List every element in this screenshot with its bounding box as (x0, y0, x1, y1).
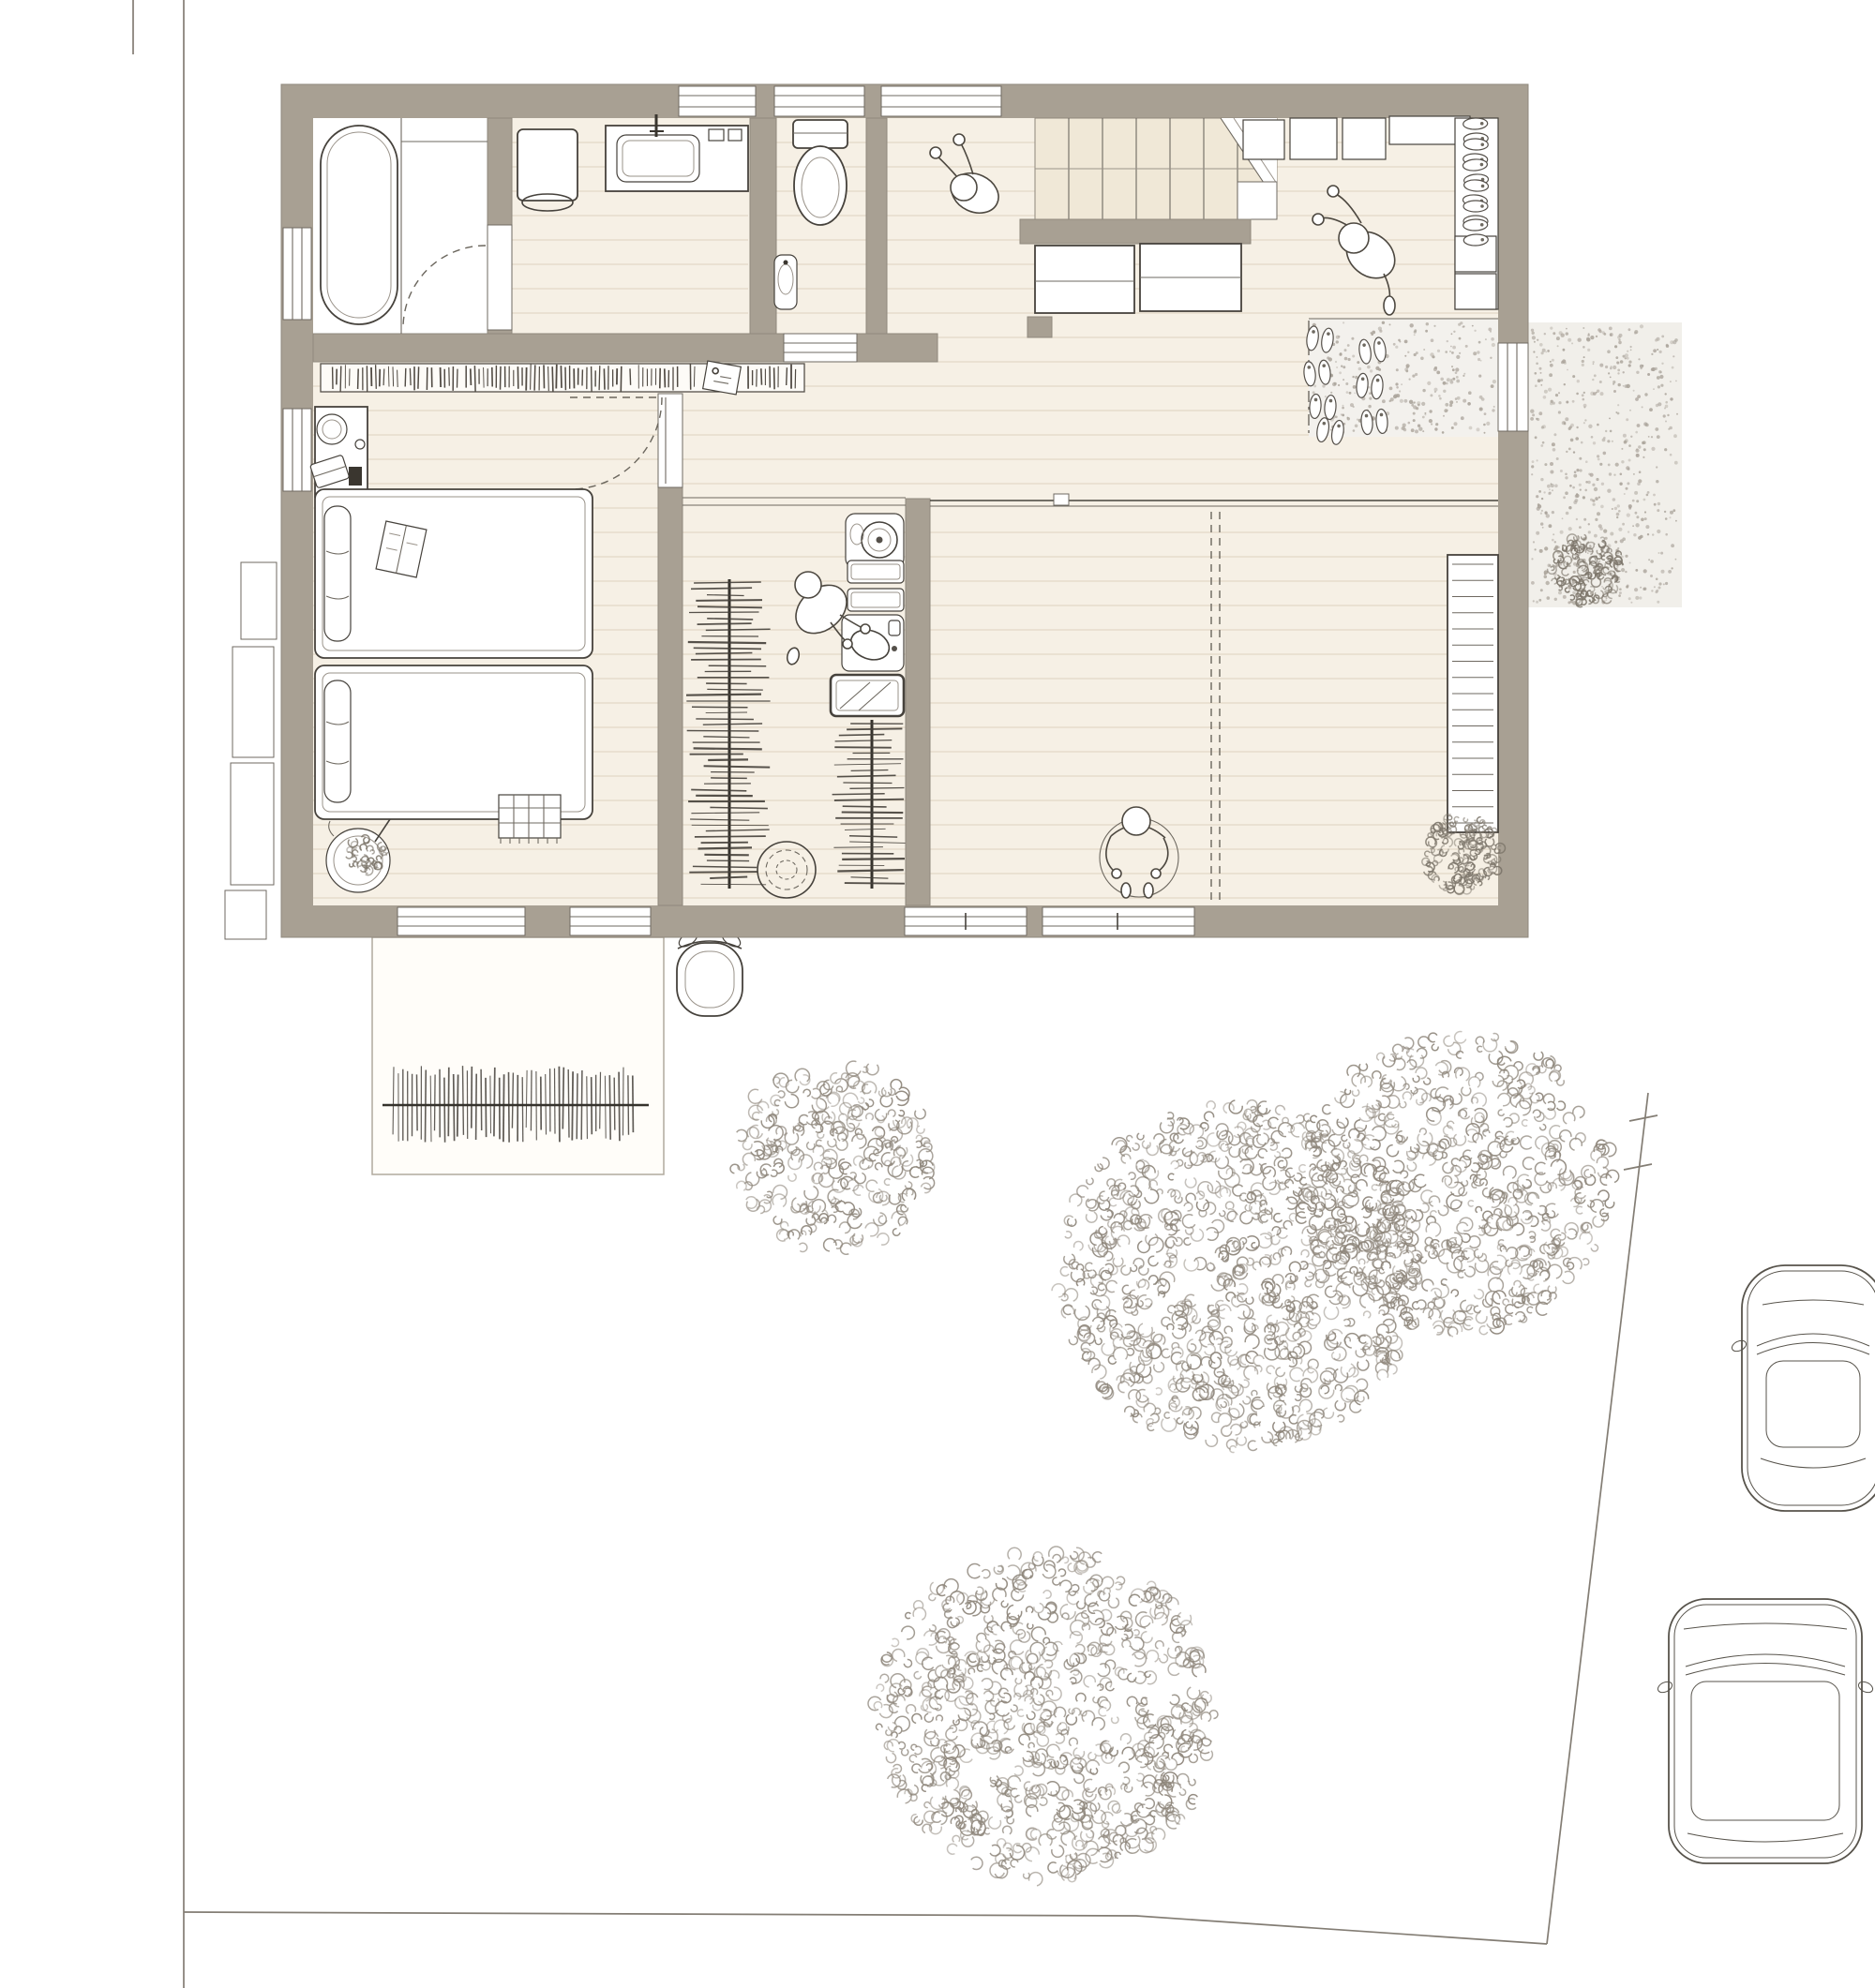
living-sliding-doors (1042, 907, 1194, 935)
understair-wall (1020, 219, 1251, 244)
garden-stool (677, 929, 743, 1016)
laundry-basket (831, 675, 904, 716)
boundary-tick (1624, 1164, 1652, 1170)
house (225, 84, 1678, 939)
boundary-tick (1629, 1115, 1657, 1121)
page (0, 0, 1875, 1988)
post (1027, 317, 1052, 337)
exterior-louvers (225, 562, 277, 939)
entrance-door (1498, 343, 1528, 431)
toilet-tank (793, 120, 847, 148)
pillow (324, 680, 351, 802)
floor-plan-drawing (0, 0, 1875, 1988)
boundary-right-diagonal (1547, 1093, 1648, 1944)
car (1731, 1265, 1875, 1511)
bookshelf (321, 361, 804, 395)
garden-trees (730, 1032, 1619, 1887)
blanket (499, 795, 561, 844)
washing-machine (517, 129, 577, 201)
toilet-sliding-door (784, 334, 857, 362)
fan-unit (846, 514, 904, 568)
bathtub (321, 126, 397, 324)
staircase (1020, 118, 1277, 337)
pocket-door (658, 394, 682, 487)
desk-stool (317, 414, 347, 444)
car (1657, 1599, 1875, 1863)
kitchen-counter (1035, 246, 1134, 313)
phone (349, 467, 362, 486)
boundary-bottom (184, 1912, 1547, 1944)
pillow (324, 506, 351, 641)
sink-basin (617, 135, 699, 182)
bed (315, 489, 592, 658)
